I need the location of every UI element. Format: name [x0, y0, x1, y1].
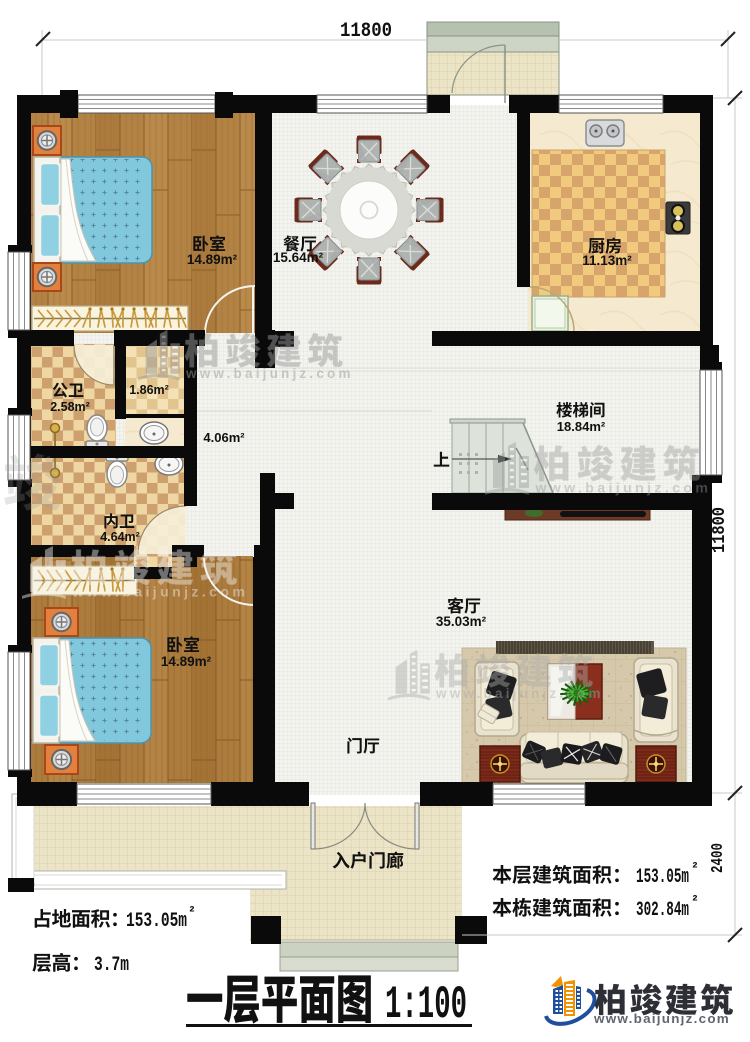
svg-text:11800: 11800 [340, 20, 392, 43]
svg-text:14.89m²: 14.89m² [161, 654, 212, 669]
svg-text:1:100: 1:100 [385, 979, 467, 1031]
svg-text:18.84m²: 18.84m² [557, 419, 606, 434]
svg-text:www.baijunjz.com: www.baijunjz.com [534, 480, 711, 496]
svg-text:www.baijunjz.com: www.baijunjz.com [71, 584, 248, 600]
svg-text:153.05m: 153.05m [636, 866, 689, 889]
svg-text:302.84m: 302.84m [636, 899, 689, 922]
svg-text:www.baijunjz.com: www.baijunjz.com [435, 686, 604, 701]
svg-text:11.13m²: 11.13m² [582, 253, 632, 268]
svg-text:2400: 2400 [709, 843, 728, 873]
svg-text:www.baijunjz.com: www.baijunjz.com [593, 1011, 730, 1026]
svg-text:4.06m²: 4.06m² [203, 430, 245, 445]
svg-text:14.89m²: 14.89m² [187, 252, 238, 267]
svg-text:²: ² [691, 860, 699, 875]
svg-text:www.baijunjz.com: www.baijunjz.com [185, 366, 354, 381]
svg-text:35.03m²: 35.03m² [436, 614, 487, 629]
svg-text:153.05m: 153.05m [126, 910, 187, 933]
svg-text:15.64m²: 15.64m² [273, 250, 324, 265]
svg-text:²: ² [691, 893, 699, 908]
svg-text:3.7m: 3.7m [94, 954, 129, 977]
svg-text:11800: 11800 [710, 507, 730, 553]
svg-text:2.58m²: 2.58m² [50, 400, 90, 414]
svg-text:4.64m²: 4.64m² [100, 530, 140, 544]
svg-text:1.86m²: 1.86m² [129, 383, 169, 397]
svg-text:²: ² [188, 904, 196, 919]
